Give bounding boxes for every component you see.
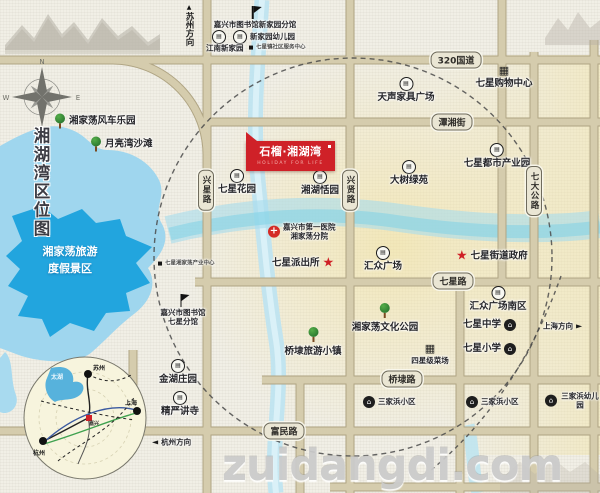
location-map: N S W E 嘉兴市图书馆新家园分馆新家园幼儿园江南新家园七星镇社区服务中心天… (0, 0, 600, 493)
project-banner: 石榴·湘湖湾 HOLIDAY FOR LIFE (246, 141, 335, 171)
road-label: 富民路 (263, 423, 304, 440)
inset-center-label: 嘉兴 (89, 420, 99, 427)
inset-lake-label: 太湖 (51, 372, 63, 381)
regional-inset-map: 太湖 嘉兴 苏州上海杭州 (23, 356, 147, 480)
road-label: 七星路 (432, 273, 473, 290)
inset-city-label: 上海 (125, 398, 137, 407)
up-triangle-icon: ▲ (187, 4, 192, 11)
lake-resort-label: 湘家荡旅游 度假景区 (43, 244, 98, 277)
inset-city-label: 苏州 (93, 363, 105, 372)
project-title: 石榴·湘湖湾 (259, 146, 321, 158)
banner-superscript (328, 145, 331, 148)
road-label: 七大公路 (526, 166, 542, 216)
map-vertical-title: 湘湖湾区位图 (28, 127, 52, 238)
road-label: 兴星路 (198, 170, 214, 211)
direction-north: ▲ 苏州方向 (183, 4, 195, 46)
watermark: zuidangdi.com (222, 441, 562, 491)
road-label: 桥埭路 (381, 371, 422, 388)
road-label: 320国道 (431, 52, 482, 69)
road-label: 潭湘街 (431, 114, 472, 131)
project-tagline: HOLIDAY FOR LIFE (257, 161, 324, 166)
inset-graphics (23, 356, 147, 480)
inset-city-label: 杭州 (33, 448, 45, 457)
road-label: 兴贤路 (342, 170, 358, 211)
